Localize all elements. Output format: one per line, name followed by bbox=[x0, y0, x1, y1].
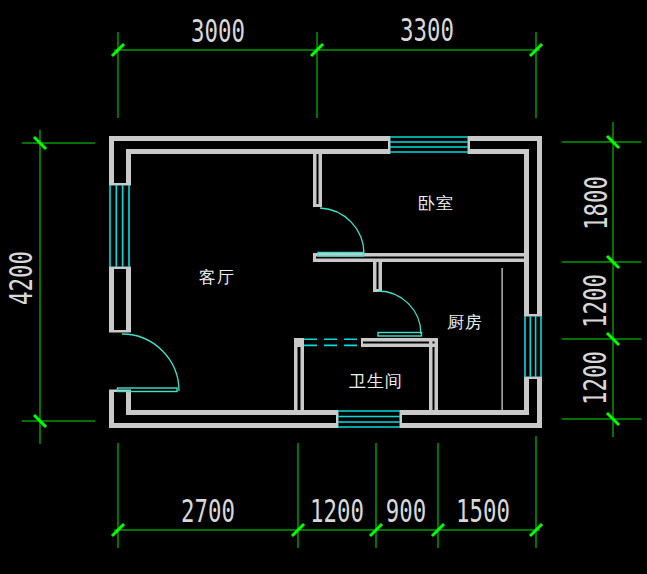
wall-segment bbox=[402, 410, 529, 415]
wall-segment bbox=[373, 262, 377, 292]
dimension-ticks bbox=[34, 44, 619, 536]
wall-segment bbox=[109, 267, 114, 330]
wall-segment bbox=[126, 154, 131, 185]
wall-cap bbox=[524, 314, 542, 317]
doors bbox=[118, 208, 422, 392]
top-window bbox=[390, 137, 468, 152]
wall-segment bbox=[468, 136, 542, 141]
wall-segment bbox=[126, 410, 336, 415]
windows bbox=[110, 137, 541, 427]
cad-drawing-canvas: 3000 3300 2700 1200 900 1500 4200 1800 1… bbox=[0, 0, 647, 574]
wall-segment bbox=[313, 259, 524, 263]
wall-segment bbox=[126, 392, 131, 410]
wall-segment bbox=[109, 423, 336, 428]
wall-segment bbox=[468, 149, 529, 154]
wall-segment bbox=[524, 154, 529, 314]
wall-segment bbox=[363, 344, 438, 348]
right-window bbox=[525, 316, 541, 377]
wall-cap bbox=[294, 338, 304, 347]
floor-plan bbox=[0, 0, 647, 574]
wall-segment bbox=[363, 338, 438, 342]
wall-segment bbox=[313, 154, 317, 207]
left-window bbox=[110, 185, 129, 267]
wall-cap bbox=[109, 330, 131, 333]
wall-segment bbox=[435, 338, 439, 410]
wall-segment bbox=[402, 423, 542, 428]
outer-walls bbox=[109, 136, 542, 428]
wall-segment bbox=[109, 392, 114, 423]
wall-cap bbox=[109, 267, 131, 270]
wall-segment bbox=[537, 141, 542, 314]
dimension-lines bbox=[22, 32, 641, 548]
kitchen-partition-line bbox=[502, 268, 503, 410]
wall-cap bbox=[336, 410, 339, 428]
wall-cap bbox=[524, 377, 542, 380]
wall-segment bbox=[429, 338, 433, 410]
wall-cap bbox=[109, 183, 131, 186]
entry-door-arc bbox=[122, 334, 179, 391]
wall-segment bbox=[109, 141, 114, 185]
wall-segment bbox=[524, 379, 529, 410]
bathroom-sliding-opening bbox=[304, 339, 362, 345]
bedroom-door-arc bbox=[320, 208, 364, 254]
wall-segment bbox=[126, 267, 131, 330]
kitchen-door-panel bbox=[378, 333, 422, 337]
wall-cap bbox=[361, 338, 363, 347]
bottom-window bbox=[338, 411, 400, 427]
kitchen-door-arc bbox=[378, 291, 421, 334]
wall-cap bbox=[400, 410, 403, 428]
wall-segment bbox=[301, 338, 305, 410]
wall-segment bbox=[319, 154, 323, 207]
wall-cap bbox=[313, 253, 316, 262]
wall-segment bbox=[379, 262, 383, 292]
wall-segment bbox=[537, 379, 542, 423]
interior-walls bbox=[294, 154, 524, 410]
wall-cap bbox=[313, 204, 322, 207]
wall-segment bbox=[294, 338, 298, 410]
wall-segment bbox=[109, 136, 390, 141]
wall-segment bbox=[126, 149, 390, 154]
